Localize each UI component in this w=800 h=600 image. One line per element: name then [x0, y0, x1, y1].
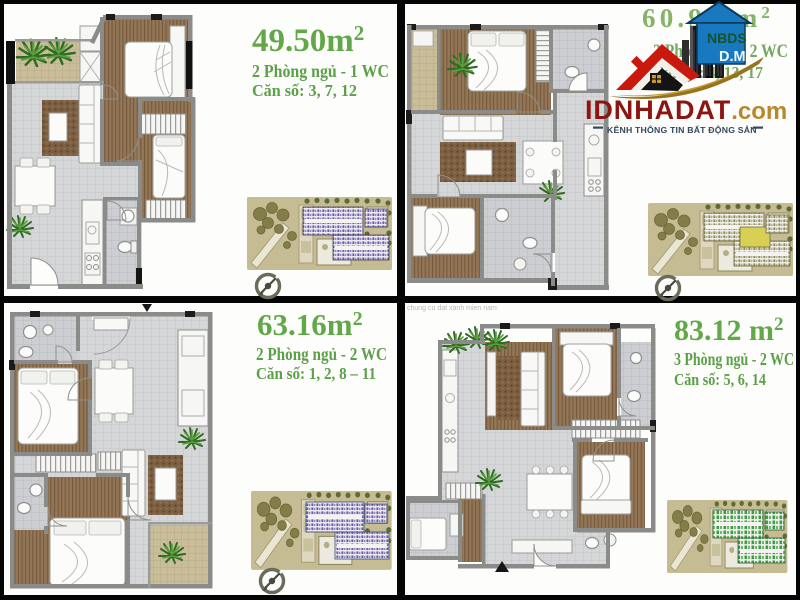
svg-text:83.12 m2: 83.12 m2	[674, 314, 784, 347]
svg-text:Căn số: 5, 6, 14: Căn số: 5, 6, 14	[674, 370, 766, 389]
svg-text:chung cu dat xanh mien nam: chung cu dat xanh mien nam	[407, 305, 497, 312]
svg-text:KÊNH THÔNG TIN BẤT ĐỘNG SẢN: KÊNH THÔNG TIN BẤT ĐỘNG SẢN	[607, 124, 757, 135]
svg-text:2 Phòng ngủ - 2 WC: 2 Phòng ngủ - 2 WC	[256, 344, 387, 364]
svg-text:Căn số: 3, 7, 12: Căn số: 3, 7, 12	[252, 81, 357, 100]
svg-text:D.M: D.M	[719, 49, 746, 65]
svg-text:Căn số: 1, 2, 8 – 11: Căn số: 1, 2, 8 – 11	[256, 364, 376, 383]
svg-text:IDNHADAT.com: IDNHADAT.com	[585, 95, 787, 125]
svg-text:3 Phòng ngủ - 2 WC: 3 Phòng ngủ - 2 WC	[674, 349, 794, 369]
svg-text:NBDS: NBDS	[707, 30, 747, 46]
svg-text:49.50m2: 49.50m2	[252, 21, 364, 59]
svg-text:63.16m2: 63.16m2	[257, 307, 363, 342]
svg-text:2 Phòng ngủ - 1 WC: 2 Phòng ngủ - 1 WC	[252, 61, 389, 81]
